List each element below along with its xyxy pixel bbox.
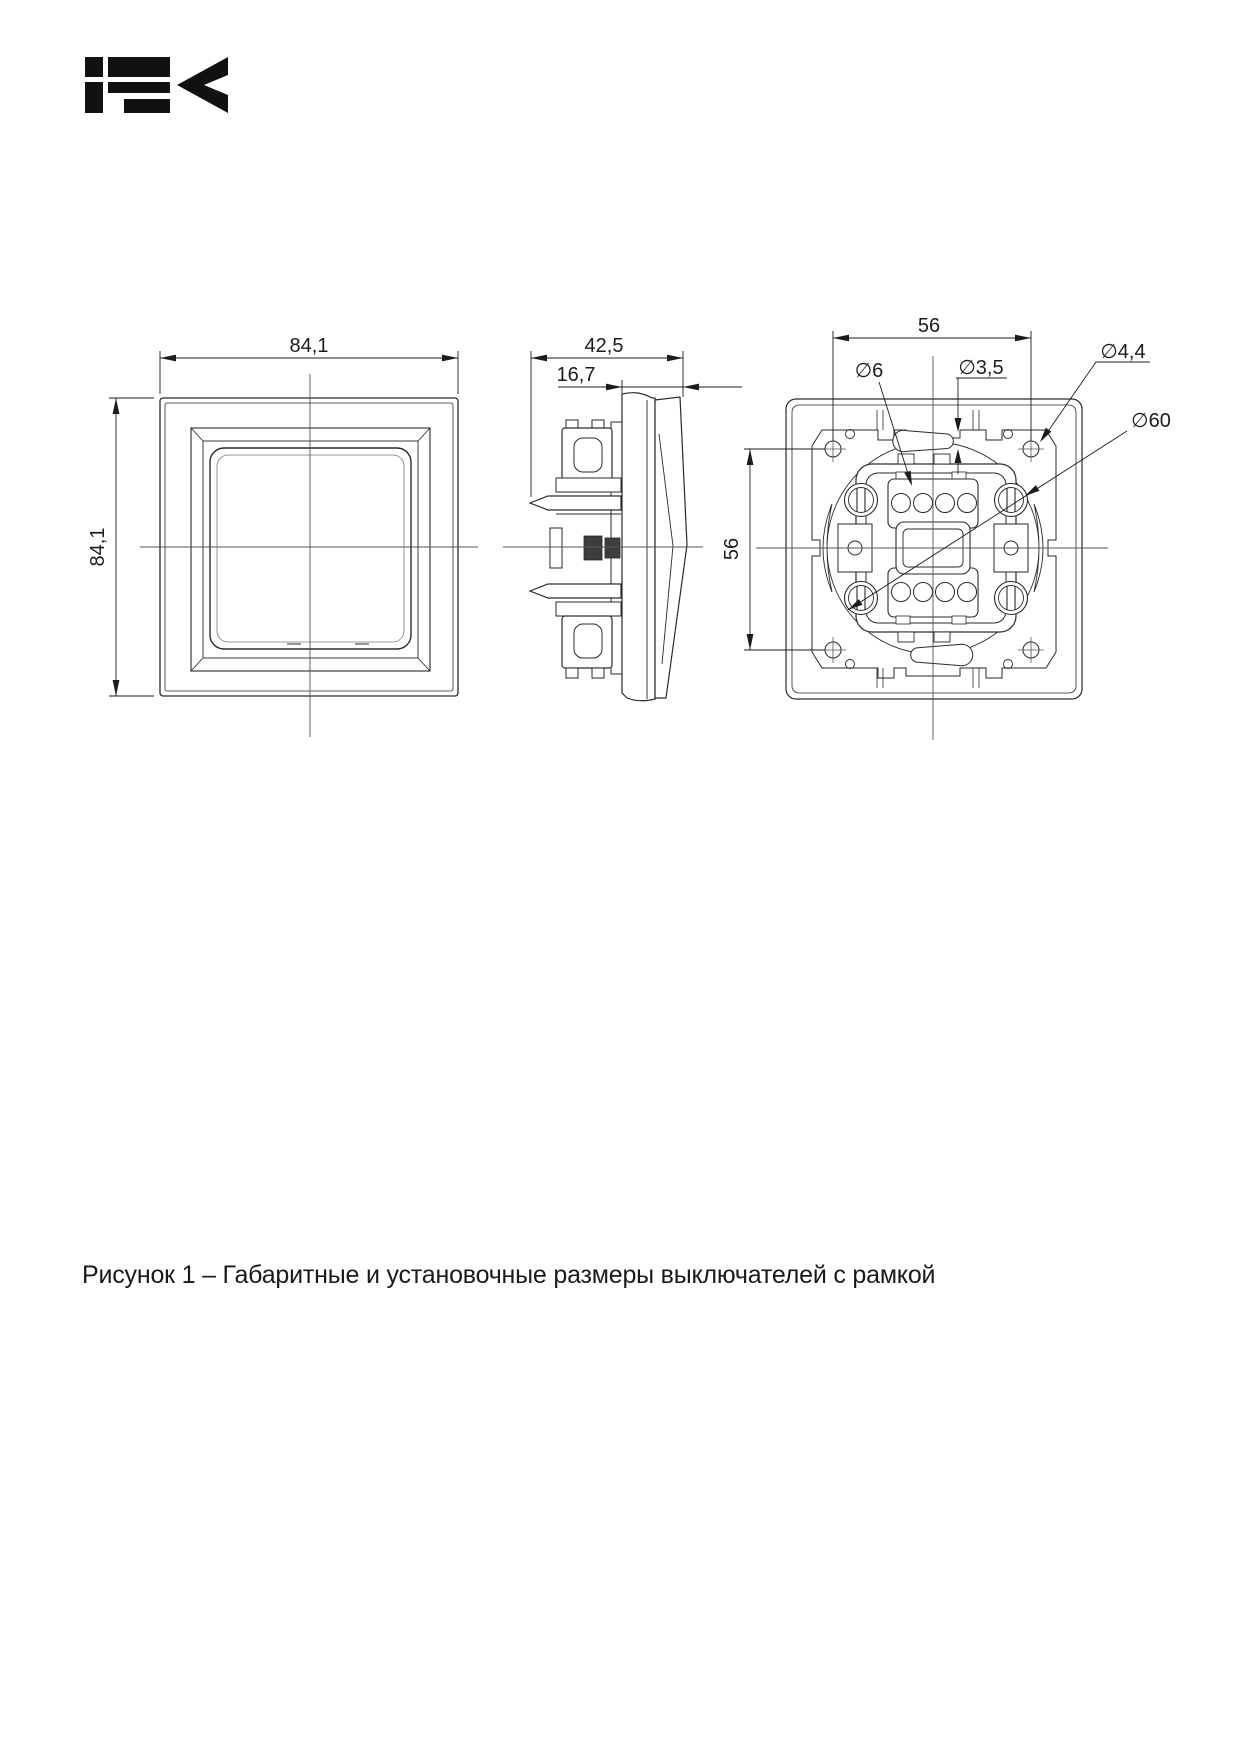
dim-label-dia4-4: ∅4,4 (1100, 341, 1145, 363)
screw (995, 582, 1028, 615)
side-bottom-claw-arm (530, 584, 621, 598)
side-bottom-tab-right (592, 668, 604, 678)
dim-label-front-width: 84,1 (290, 335, 329, 357)
logo-e-top-bar (108, 57, 170, 77)
side-screw-hatched-1 (584, 536, 602, 560)
side-bottom-yoke (556, 602, 621, 616)
technical-drawing: 84,1 84,1 42,5 16,7 56 56 ∅6 ∅3,5 ∅4,4 ∅… (0, 0, 1243, 1748)
dim-label-dia6: ∅6 (855, 360, 884, 382)
side-top-yoke (556, 478, 621, 492)
logo-e-mid-bar (108, 82, 170, 93)
dim-label-dia3-5: ∅3,5 (958, 357, 1003, 379)
side-center-block (550, 528, 562, 568)
dim-label-back-span-horizontal: 56 (918, 315, 940, 337)
dim-label-side-total-depth: 42,5 (585, 335, 624, 357)
side-bottom-claw-slot (574, 624, 602, 658)
figure-caption: Рисунок 1 – Габаритные и установочные ра… (82, 1261, 935, 1290)
back-view (786, 399, 1082, 699)
logo-i-stem (85, 82, 103, 113)
dim-label-side-flush-depth: 16,7 (557, 364, 596, 386)
screw (845, 484, 878, 517)
screw (995, 484, 1028, 517)
side-bottom-tab-left (566, 668, 578, 678)
side-top-claw-slot (574, 438, 602, 472)
iek-logo (85, 57, 228, 113)
back-bottom-kidney-slot (911, 644, 973, 665)
back-top-kidney-slot (893, 430, 954, 451)
logo-e-bottom-bar (124, 99, 170, 113)
dim-label-dia60: ∅60 (1131, 410, 1171, 432)
side-top-claw-arm (530, 496, 621, 510)
logo-k-chevron (177, 57, 228, 113)
dim-front-width (160, 351, 458, 394)
side-screw-hatched-2 (605, 538, 620, 558)
document-page: 84,1 84,1 42,5 16,7 56 56 ∅6 ∅3,5 ∅4,4 ∅… (0, 0, 1243, 1748)
dim-label-front-height: 84,1 (87, 528, 109, 567)
front-rocker-key (210, 448, 411, 649)
dim-label-back-span-vertical: 56 (721, 538, 743, 560)
logo-i-dot (85, 57, 103, 77)
